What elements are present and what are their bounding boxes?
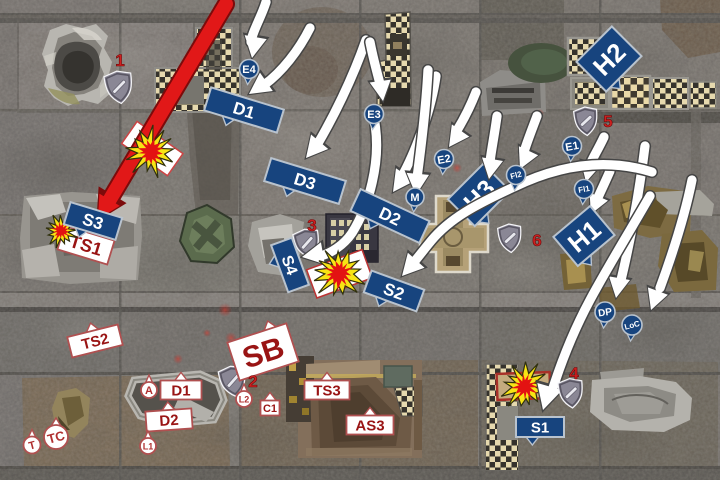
svg-text:A: A [145,385,153,397]
svg-text:S1: S1 [531,419,549,436]
svg-text:L2: L2 [239,394,250,404]
svg-text:D2: D2 [159,412,179,430]
svg-text:AS3: AS3 [355,417,384,434]
svg-text:D1: D1 [171,382,190,399]
svg-text:4: 4 [569,364,579,383]
svg-text:E2: E2 [436,153,451,167]
svg-text:C1: C1 [263,403,277,415]
svg-text:TS3: TS3 [313,382,341,399]
svg-text:E3: E3 [367,109,380,121]
svg-text:6: 6 [532,231,541,250]
svg-text:2: 2 [248,372,257,391]
svg-text:DP: DP [598,307,614,320]
svg-text:M: M [410,192,419,204]
svg-text:3: 3 [307,216,316,235]
svg-text:E1: E1 [564,140,579,154]
svg-text:1: 1 [115,51,124,70]
svg-text:5: 5 [603,112,612,131]
svg-text:L1: L1 [143,441,154,451]
svg-text:E4: E4 [242,64,256,76]
